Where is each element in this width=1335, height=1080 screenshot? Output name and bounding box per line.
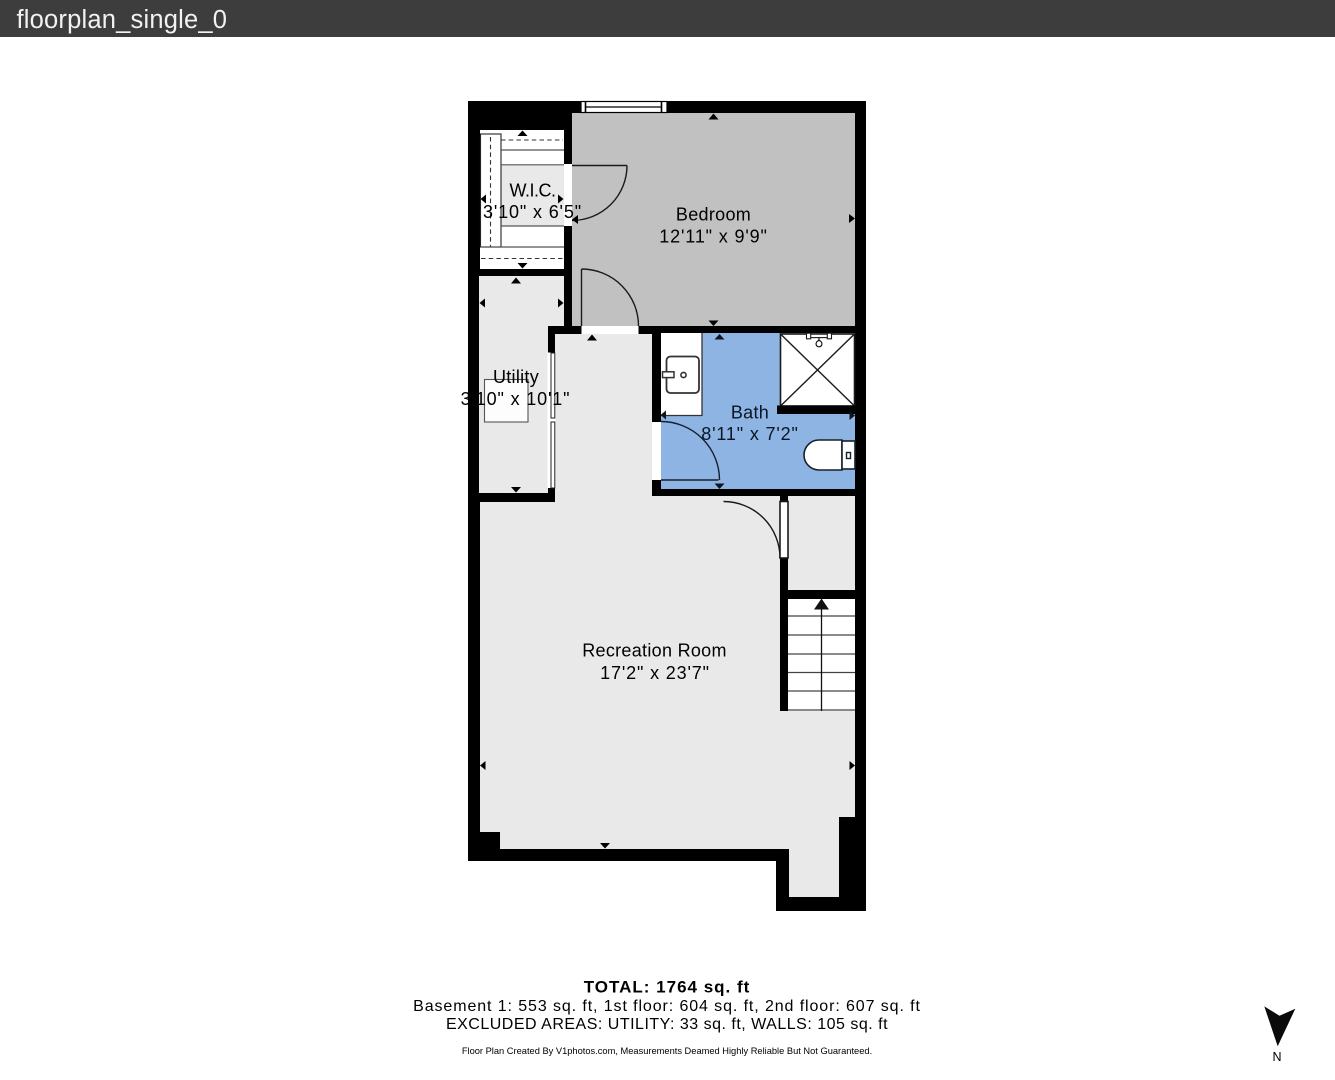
svg-text:Floor Plan Created By V1photos: Floor Plan Created By V1photos.com, Meas… xyxy=(462,1046,872,1056)
svg-text:Bedroom: Bedroom xyxy=(676,204,751,224)
svg-text:17'2" x 23'7": 17'2" x 23'7" xyxy=(600,663,710,683)
svg-text:Basement 1: 553 sq. ft, 1st fl: Basement 1: 553 sq. ft, 1st floor: 604 s… xyxy=(413,998,921,1015)
svg-text:Bath: Bath xyxy=(731,402,769,422)
svg-text:floorplan_single_0: floorplan_single_0 xyxy=(17,6,228,34)
svg-text:W.I.C.: W.I.C. xyxy=(510,180,556,200)
svg-text:Utility: Utility xyxy=(493,367,539,387)
svg-text:3'10" x 6'5": 3'10" x 6'5" xyxy=(483,202,582,222)
svg-text:8'11" x 7'2": 8'11" x 7'2" xyxy=(701,424,799,444)
svg-text:TOTAL: 1764 sq. ft: TOTAL: 1764 sq. ft xyxy=(584,978,751,997)
svg-text:3'10" x 10'1": 3'10" x 10'1" xyxy=(461,389,571,409)
svg-text:N: N xyxy=(1272,1050,1281,1064)
svg-text:Recreation Room: Recreation Room xyxy=(582,641,727,661)
svg-text:12'11" x 9'9": 12'11" x 9'9" xyxy=(659,226,767,246)
svg-text:EXCLUDED AREAS: UTILITY: 33 sq: EXCLUDED AREAS: UTILITY: 33 sq. ft, WALL… xyxy=(446,1016,888,1033)
